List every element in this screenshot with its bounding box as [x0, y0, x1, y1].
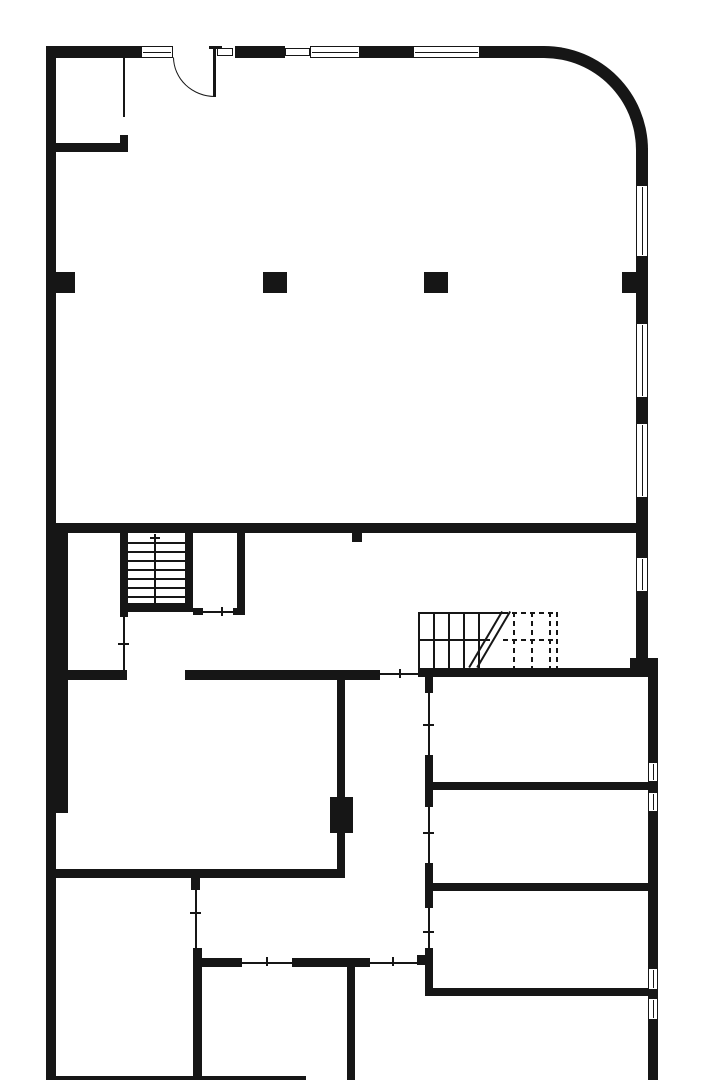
stair2-top-edge	[418, 612, 503, 614]
stair-tread	[128, 578, 185, 580]
partition-glazed	[195, 890, 197, 948]
top-wall-segment	[235, 46, 285, 58]
window	[648, 792, 658, 812]
window-mullion	[653, 764, 654, 780]
main-cross-wall	[46, 523, 648, 533]
stair-tread	[128, 560, 185, 562]
window-mullion	[642, 425, 643, 496]
stair-center-line	[154, 534, 156, 603]
door-jamb	[193, 608, 203, 615]
right-wall-segment	[636, 293, 648, 323]
stair-wall-east	[185, 533, 193, 603]
stair-tread	[128, 587, 185, 589]
partition-glazed	[123, 58, 125, 117]
room-wall	[202, 958, 242, 967]
column	[263, 272, 287, 293]
right-wall-segment	[636, 398, 648, 423]
partition-glazed	[428, 807, 430, 863]
room-divider-wall	[425, 988, 648, 996]
window	[141, 46, 173, 58]
stair2-tread-dashed	[513, 612, 515, 668]
window	[648, 762, 658, 782]
room-wall	[46, 869, 345, 878]
outer-wall-left	[46, 48, 56, 1080]
room-wall-east	[237, 533, 245, 609]
tick-mark	[118, 643, 129, 645]
window-sill	[217, 48, 233, 56]
window-mullion	[653, 1000, 654, 1018]
tick-mark	[423, 724, 434, 726]
window-mullion	[312, 52, 358, 53]
right-wall-lower-segment	[648, 782, 658, 792]
stair-tread	[128, 551, 185, 553]
partition-post	[191, 878, 200, 890]
partition-glazed	[428, 908, 430, 948]
right-wall-lower-segment	[648, 1020, 658, 1080]
column	[424, 272, 448, 293]
window	[636, 323, 648, 398]
tick-mark	[266, 957, 268, 966]
right-wall-lower-segment	[648, 668, 658, 762]
partition-post	[425, 755, 433, 807]
window	[310, 46, 360, 58]
tick-mark	[423, 931, 434, 933]
tick-mark	[423, 832, 434, 834]
room-wall-vertical	[337, 680, 345, 869]
tick-mark	[221, 607, 223, 616]
stair-tread	[128, 596, 185, 598]
corridor-wall	[185, 670, 380, 680]
pilaster-column	[52, 272, 75, 293]
window	[648, 998, 658, 1020]
window	[636, 423, 648, 498]
window	[636, 185, 648, 257]
section-wall	[418, 668, 650, 677]
wall-stub	[352, 533, 362, 542]
window-mullion	[415, 52, 478, 53]
window-mullion	[642, 187, 643, 255]
window-mullion	[653, 970, 654, 988]
door-line	[203, 611, 233, 613]
floor-plan-canvas	[0, 0, 720, 1080]
pilaster-column	[622, 272, 648, 293]
stair-wall-south	[120, 603, 193, 612]
stair2-tread-dashed	[531, 612, 533, 668]
stair-direction-arrow	[150, 537, 160, 539]
stair2-mid-line	[418, 639, 490, 641]
room-wall-vertical	[347, 962, 355, 1080]
window	[648, 968, 658, 990]
corridor-wall	[46, 670, 127, 680]
wall-block	[330, 797, 353, 833]
room-wall-vertical	[193, 948, 202, 1080]
room-wall	[46, 143, 128, 152]
right-wall-segment	[636, 592, 648, 668]
window	[285, 48, 310, 56]
tick-mark	[392, 957, 394, 966]
room-wall	[292, 958, 370, 967]
top-wall-segment	[46, 46, 141, 58]
right-wall-segment	[636, 257, 648, 273]
top-wall-segment	[360, 46, 413, 58]
tick-mark	[190, 912, 201, 914]
window-mullion	[642, 325, 643, 396]
door-swing-arc	[173, 57, 215, 97]
room-divider-wall	[425, 782, 648, 790]
stair-tread	[128, 542, 185, 544]
partition-post	[425, 677, 433, 693]
curved-corner-wall	[480, 46, 648, 150]
stair2-right-edge-dashed	[556, 612, 558, 668]
stair2-tread-dashed	[549, 612, 551, 668]
window	[636, 557, 648, 592]
tick-mark	[399, 669, 401, 678]
right-wall-segment	[636, 148, 648, 185]
window-mullion	[143, 52, 171, 53]
room-divider-wall	[425, 883, 648, 891]
right-wall-lower-segment	[648, 990, 658, 998]
window-mullion	[653, 794, 654, 810]
stair-tread	[128, 569, 185, 571]
door-jamb	[233, 608, 245, 615]
window-mullion	[642, 559, 643, 590]
right-wall-lower-segment	[648, 812, 658, 968]
bottom-wall	[46, 1076, 306, 1080]
window	[413, 46, 480, 58]
wall-left-inner-thickening	[56, 525, 68, 813]
